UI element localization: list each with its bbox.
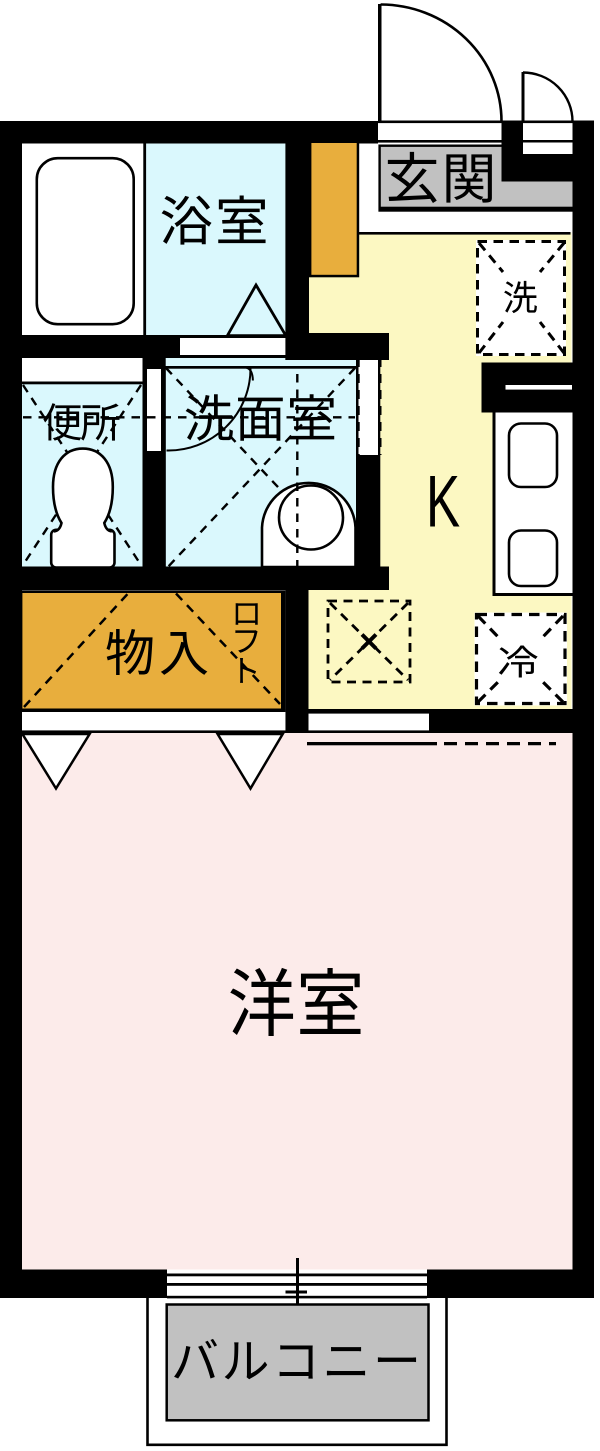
svg-text:K: K [426,462,460,543]
